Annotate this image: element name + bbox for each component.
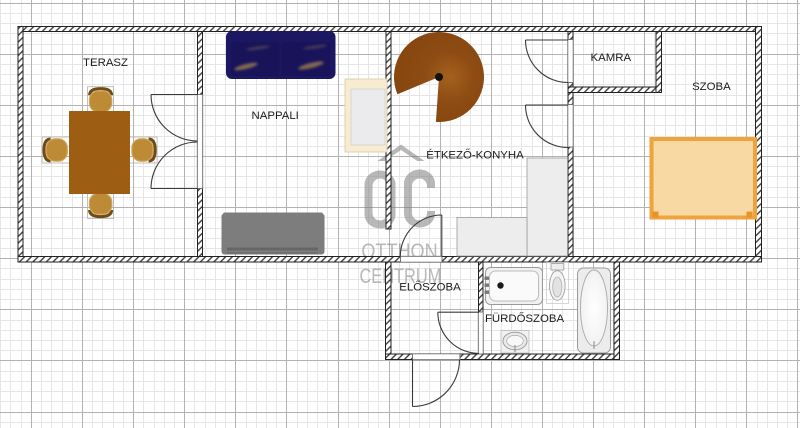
svg-text:TERASZ: TERASZ <box>83 57 128 69</box>
svg-text:KAMRA: KAMRA <box>591 52 632 64</box>
svg-text:ELŐSZOBA: ELŐSZOBA <box>399 279 461 293</box>
svg-text:FÜRDŐSZOBA: FÜRDŐSZOBA <box>485 311 565 325</box>
svg-text:ÉTKEZŐ-KONYHA: ÉTKEZŐ-KONYHA <box>426 147 524 161</box>
svg-text:NAPPALI: NAPPALI <box>252 110 299 122</box>
svg-text:SZOBA: SZOBA <box>692 81 731 93</box>
